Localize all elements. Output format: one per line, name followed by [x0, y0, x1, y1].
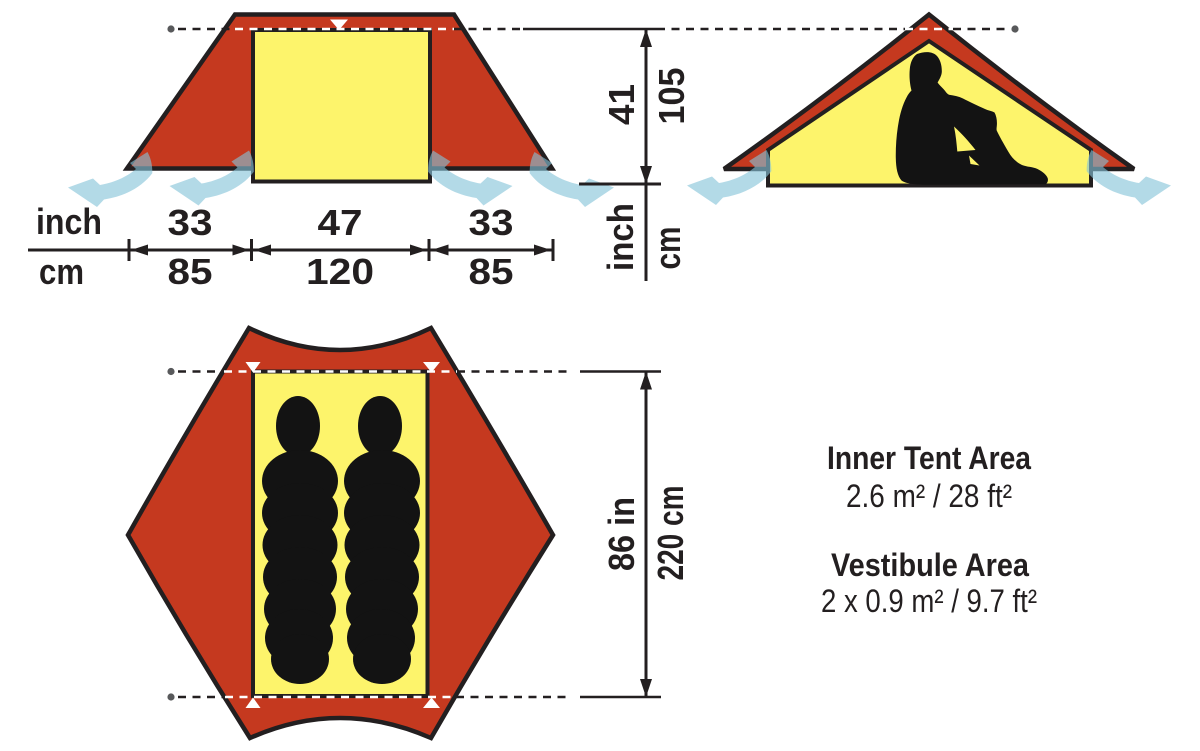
svg-text:47: 47 [318, 202, 363, 243]
svg-text:41: 41 [601, 84, 642, 125]
svg-text:2.6 m² / 28 ft²: 2.6 m² / 28 ft² [846, 478, 1012, 514]
svg-text:2 x 0.9 m² / 9.7 ft²: 2 x 0.9 m² / 9.7 ft² [821, 583, 1037, 619]
svg-text:inch: inch [600, 203, 641, 271]
svg-text:cm: cm [39, 251, 84, 292]
svg-text:85: 85 [469, 251, 514, 292]
svg-text:33: 33 [168, 202, 213, 243]
svg-text:inch: inch [36, 201, 102, 242]
svg-text:86 in: 86 in [601, 497, 642, 571]
svg-text:220 cm: 220 cm [650, 486, 691, 581]
svg-text:33: 33 [469, 202, 514, 243]
svg-text:85: 85 [168, 251, 213, 292]
svg-text:cm: cm [647, 227, 688, 270]
svg-text:105: 105 [651, 68, 692, 125]
svg-text:Vestibule Area: Vestibule Area [831, 547, 1029, 583]
svg-text:120: 120 [306, 251, 374, 292]
svg-text:Inner Tent Area: Inner Tent Area [827, 440, 1031, 476]
